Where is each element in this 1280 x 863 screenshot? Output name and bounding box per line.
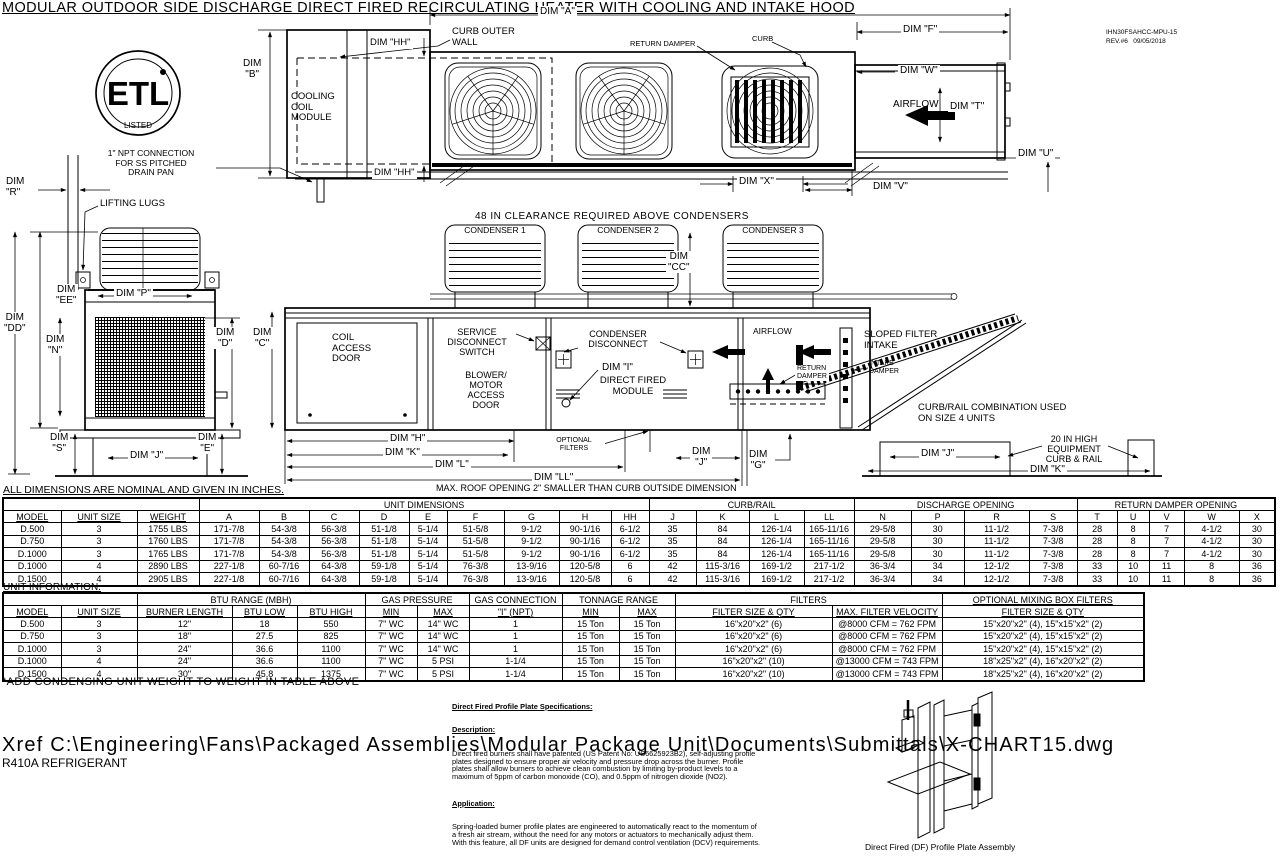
table-cell: 5-1/4 — [409, 535, 447, 548]
table-cell: 24" — [137, 643, 232, 656]
spec-application-body: Spring-loaded burner profile plates are … — [452, 823, 872, 847]
group-header-gas-connection: GAS CONNECTION — [469, 593, 562, 606]
table-cell: 18"x25"x2" (4), 16"x20"x2" (2) — [942, 655, 1144, 668]
table-cell: 7" WC — [365, 643, 417, 656]
dim-r-label: DIM "R" — [6, 176, 24, 198]
table-cell: 36.6 — [232, 643, 297, 656]
table-cell: 30 — [911, 548, 964, 561]
column-header: BTU HIGH — [297, 606, 365, 618]
table-cell: 15"x20"x2" (4), 15"x15"x2" (2) — [942, 618, 1144, 631]
table-cell: 7-3/8 — [1029, 573, 1077, 586]
drawing-number: IHN30FSAHCC-MPU-15 — [1106, 29, 1177, 36]
table-cell: 14" WC — [417, 630, 469, 643]
direct-fired-module-label: DIRECT FIRED MODULE — [578, 376, 688, 397]
table-cell: 64-3/8 — [309, 560, 359, 573]
table-cell: 33 — [1077, 573, 1117, 586]
table-cell: 169-1/2 — [749, 560, 804, 573]
table-cell: 51-1/8 — [359, 548, 409, 561]
table-cell: 11-1/2 — [964, 548, 1029, 561]
intake-damper-label: INTAKE DAMPER — [869, 360, 899, 376]
table-cell: @8000 CFM = 762 FPM — [832, 643, 942, 656]
table-cell: 171-7/8 — [199, 523, 259, 536]
table-cell: 5-1/4 — [409, 560, 447, 573]
table-cell: 7-3/8 — [1029, 560, 1077, 573]
table-cell: 126-1/4 — [749, 548, 804, 561]
table-cell: 36 — [1239, 560, 1275, 573]
unit-information-table: BTU RANGE (MBH) GAS PRESSURE GAS CONNECT… — [2, 592, 1145, 682]
spec-description-heading: Description: — [452, 726, 872, 734]
table-cell: 120-5/8 — [559, 573, 611, 586]
group-header-discharge-opening: DISCHARGE OPENING — [854, 498, 1077, 511]
column-header: L — [749, 511, 804, 523]
table-cell: 29-5/8 — [854, 535, 911, 548]
dim-v-label: DIM "V" — [871, 181, 910, 192]
table-cell: 54-3/8 — [259, 523, 309, 536]
profile-plate-assembly-drawing — [878, 686, 1078, 844]
dim-g-label: DIM "G" — [749, 449, 767, 471]
table-cell: 11 — [1149, 560, 1184, 573]
column-header: G — [504, 511, 559, 523]
table-cell: 7" WC — [365, 668, 417, 681]
group-header-tonnage-range: TONNAGE RANGE — [562, 593, 675, 606]
airflow-side-label: AIRFLOW — [753, 327, 792, 337]
table-cell: 51-1/8 — [359, 535, 409, 548]
table-cell: 15 Ton — [619, 618, 675, 631]
column-header: MAX. FILTER VELOCITY — [832, 606, 942, 618]
table-cell: 3 — [61, 535, 137, 548]
table-cell: 7 — [1149, 535, 1184, 548]
column-header: FILTER SIZE & QTY — [942, 606, 1144, 618]
table-cell: @8000 CFM = 762 FPM — [832, 630, 942, 643]
table-cell: @13000 CFM = 743 FPM — [832, 655, 942, 668]
table-cell: 10 — [1117, 560, 1149, 573]
table-cell: 16"x20"x2" (10) — [675, 655, 832, 668]
table-cell: 3 — [61, 523, 137, 536]
column-header: A — [199, 511, 259, 523]
etl-mark: ETL LISTED — [96, 51, 180, 135]
dim-ll-label: DIM "LL" — [532, 472, 575, 483]
sloped-filter-intake-label: SLOPED FILTER INTAKE — [864, 330, 937, 351]
cooling-coil-module-label: COOLING COIL MODULE — [291, 92, 335, 124]
table-row: D.100042890 LBS227-1/860-7/1664-3/859-1/… — [3, 560, 1275, 573]
table-cell: 169-1/2 — [749, 573, 804, 586]
table-cell: 15 Ton — [562, 630, 619, 643]
table-cell: 28 — [1077, 548, 1117, 561]
table-cell: 217-1/2 — [804, 573, 854, 586]
table-cell: 126-1/4 — [749, 535, 804, 548]
table-cell: 56-3/8 — [309, 523, 359, 536]
group-header-btu-range: BTU RANGE (MBH) — [137, 593, 365, 606]
spec-application-heading: Application: — [452, 800, 872, 808]
table-cell: 550 — [297, 618, 365, 631]
table-cell: 7-3/8 — [1029, 535, 1077, 548]
table-cell: 84 — [696, 535, 749, 548]
table-cell: 15 Ton — [562, 618, 619, 631]
column-header: "I" (NPT) — [469, 606, 562, 618]
table-cell: 29-5/8 — [854, 523, 911, 536]
dim-cc-label: DIM "CC" — [666, 251, 692, 273]
table-cell: 15 Ton — [562, 643, 619, 656]
table-cell: 825 — [297, 630, 365, 643]
column-header: P — [911, 511, 964, 523]
dim-e-label: DIM "E" — [196, 432, 218, 454]
refrigerant-note: R410A REFRIGERANT — [2, 757, 127, 770]
table-cell: 5-1/4 — [409, 523, 447, 536]
table-row: D.1000424"36.611007" WC5 PSI1-1/415 Ton1… — [3, 655, 1144, 668]
dimensions-table: UNIT DIMENSIONS CURB/RAIL DISCHARGE OPEN… — [2, 497, 1276, 587]
table-cell: 227-1/8 — [199, 560, 259, 573]
table-cell: 1755 LBS — [137, 523, 199, 536]
group-header-return-damper-opening: RETURN DAMPER OPENING — [1077, 498, 1275, 511]
table-row: D.150042905 LBS227-1/860-7/1664-3/859-1/… — [3, 573, 1275, 586]
table-cell: D.750 — [3, 535, 61, 548]
condenser-2-label: CONDENSER 2 — [582, 226, 674, 236]
table-cell: 60-7/16 — [259, 560, 309, 573]
table-cell: 84 — [696, 548, 749, 561]
column-header: B — [259, 511, 309, 523]
column-header: C — [309, 511, 359, 523]
airflow-plan-label: AIRFLOW — [893, 99, 939, 110]
roof-opening-note: MAX. ROOF OPENING 2" SMALLER THAN CURB O… — [436, 483, 737, 493]
table-cell: 5-1/4 — [409, 548, 447, 561]
table-cell: 115-3/16 — [696, 560, 749, 573]
dim-a-label: DIM "A" — [538, 6, 577, 17]
table-cell: D.750 — [3, 630, 61, 643]
spec-title: Direct Fired Profile Plate Specification… — [452, 703, 872, 711]
table-row: D.1000324"36.611007" WC14" WC115 Ton15 T… — [3, 643, 1144, 656]
clearance-note: 48 IN CLEARANCE REQUIRED ABOVE CONDENSER… — [475, 211, 749, 222]
table-cell: 36 — [1239, 573, 1275, 586]
condenser-1-fins — [449, 243, 541, 288]
table-cell: 4-1/2 — [1184, 535, 1239, 548]
table-cell: 51-1/8 — [359, 523, 409, 536]
lifting-lugs-label: LIFTING LUGS — [100, 199, 165, 210]
dim-h-label: DIM "H" — [388, 433, 427, 444]
table-cell: 30 — [1239, 548, 1275, 561]
table-cell: 6-1/2 — [611, 548, 649, 561]
table-cell: 51-5/8 — [447, 548, 504, 561]
table-cell: 54-3/8 — [259, 535, 309, 548]
table-cell: 3 — [61, 618, 137, 631]
column-header: D — [359, 511, 409, 523]
condenser-2-fins — [582, 243, 674, 288]
table-cell: 4 — [61, 560, 137, 573]
table-cell: 15 Ton — [619, 630, 675, 643]
table-cell: 9-1/2 — [504, 523, 559, 536]
dim-c-label: DIM "C" — [251, 327, 273, 349]
table-cell: 5-1/4 — [409, 573, 447, 586]
table-cell: 54-3/8 — [259, 548, 309, 561]
dim-s-label: DIM "S" — [48, 432, 70, 454]
column-header: K — [696, 511, 749, 523]
table-cell: 12" — [137, 618, 232, 631]
table-cell: 8 — [1117, 523, 1149, 536]
dim-j-left-label: DIM "J" — [128, 450, 165, 461]
curb-rail-20in-label: 20 IN HIGH EQUIPMENT CURB & RAIL — [1030, 434, 1118, 464]
table-cell: 28 — [1077, 523, 1117, 536]
table-cell: 171-7/8 — [199, 548, 259, 561]
table-cell: 7-3/8 — [1029, 523, 1077, 536]
service-disconnect-label: SERVICE DISCONNECT SWITCH — [434, 327, 520, 357]
table-cell: 9-1/2 — [504, 548, 559, 561]
dim-hh-bottom-label: DIM "HH" — [372, 168, 417, 179]
table-cell: 14" WC — [417, 618, 469, 631]
table-cell: 90-1/16 — [559, 523, 611, 536]
column-header: F — [447, 511, 504, 523]
table-cell: 16"x20"x2" (6) — [675, 618, 832, 631]
table-cell: 1760 LBS — [137, 535, 199, 548]
table-cell: 42 — [649, 560, 696, 573]
table-cell: 13-9/16 — [504, 573, 559, 586]
table-cell: 36.6 — [232, 655, 297, 668]
table-cell: 24" — [137, 655, 232, 668]
page-title: MODULAR OUTDOOR SIDE DISCHARGE DIRECT FI… — [2, 0, 855, 16]
column-header: H — [559, 511, 611, 523]
column-header: W — [1184, 511, 1239, 523]
table-cell: 15 Ton — [619, 643, 675, 656]
table-cell: 171-7/8 — [199, 535, 259, 548]
table-cell: 35 — [649, 548, 696, 561]
dim-hh-top-label: DIM "HH" — [368, 38, 413, 49]
table-cell: 18" — [137, 630, 232, 643]
table-cell: 1 — [469, 630, 562, 643]
curb-outer-wall-label: CURB OUTER WALL — [452, 27, 515, 48]
table-cell: D.1000 — [3, 548, 61, 561]
condenser-fins — [102, 233, 198, 285]
specifications-block: Direct Fired Profile Plate Specification… — [452, 687, 872, 863]
table-cell: 35 — [649, 535, 696, 548]
dim-j-rail-label: DIM "J" — [919, 448, 956, 459]
dim-d-label: DIM "D" — [214, 327, 236, 349]
table-cell: 10 — [1117, 573, 1149, 586]
table-cell: 8 — [1117, 535, 1149, 548]
table-cell: 7" WC — [365, 630, 417, 643]
column-header: V — [1149, 511, 1184, 523]
column-header: MAX — [619, 606, 675, 618]
column-header: E — [409, 511, 447, 523]
table-cell: 90-1/16 — [559, 535, 611, 548]
table-header-row: MODEL UNIT SIZE WEIGHT A B C D E F G H H… — [3, 511, 1275, 523]
table-cell: 7-3/8 — [1029, 548, 1077, 561]
table-cell: 29-5/8 — [854, 548, 911, 561]
table-cell: 165-11/16 — [804, 535, 854, 548]
table-cell: 1100 — [297, 643, 365, 656]
column-header: S — [1029, 511, 1077, 523]
table-cell: 33 — [1077, 560, 1117, 573]
return-damper-plan-label: RETURN DAMPER — [630, 40, 695, 48]
table-cell: 15 Ton — [562, 668, 619, 681]
dim-t-label: DIM "T" — [948, 101, 986, 112]
table-cell: 3 — [61, 643, 137, 656]
drawing-revision: REV.#6 09/05/2018 — [1106, 38, 1166, 45]
table-cell: 217-1/2 — [804, 560, 854, 573]
table-cell: 11 — [1149, 573, 1184, 586]
table-cell: 8 — [1184, 560, 1239, 573]
dim-ee-label: DIM "EE" — [54, 284, 78, 306]
group-header-filters: FILTERS — [675, 593, 942, 606]
column-header: WEIGHT — [137, 511, 199, 523]
dim-f-label: DIM "F" — [901, 24, 939, 35]
table-cell: 5 PSI — [417, 668, 469, 681]
table-cell: 6 — [611, 560, 649, 573]
table-cell: 6-1/2 — [611, 523, 649, 536]
table-cell: 8 — [1184, 573, 1239, 586]
table-cell: 13-9/16 — [504, 560, 559, 573]
assembly-caption: Direct Fired (DF) Profile Plate Assembly — [865, 843, 1015, 853]
optional-filters-label: OPTIONAL FILTERS — [543, 437, 605, 453]
etl-text: ETL — [107, 75, 169, 112]
dim-i-label: DIM "I" — [600, 362, 635, 373]
dim-w-label: DIM "W" — [898, 65, 940, 76]
group-header-gas-pressure: GAS PRESSURE — [365, 593, 469, 606]
dim-b-label: DIM "B" — [243, 58, 261, 80]
curb-label: CURB — [752, 35, 773, 43]
table-cell: 15 Ton — [619, 668, 675, 681]
table-cell: 18 — [232, 618, 297, 631]
dim-dd-label: DIM "DD" — [2, 312, 28, 334]
column-header: FILTER SIZE & QTY — [675, 606, 832, 618]
table-cell: 2905 LBS — [137, 573, 199, 586]
table-header-row: MODEL UNIT SIZE BURNER LENGTH BTU LOW BT… — [3, 606, 1144, 618]
coil-access-door-label: COIL ACCESS DOOR — [332, 333, 371, 365]
table-cell: 36-3/4 — [854, 560, 911, 573]
dim-n-label: DIM "N" — [44, 334, 66, 356]
table-cell: D.1000 — [3, 643, 61, 656]
dim-l-label: DIM "L" — [433, 459, 471, 470]
table-cell: 165-11/16 — [804, 548, 854, 561]
column-header: MODEL — [3, 511, 61, 523]
table-cell: D.1000 — [3, 560, 61, 573]
table-cell: 59-1/8 — [359, 573, 409, 586]
table-cell: 5 PSI — [417, 655, 469, 668]
condenser-1-label: CONDENSER 1 — [449, 226, 541, 236]
table-cell: 11-1/2 — [964, 523, 1029, 536]
group-header-unit-dimensions: UNIT DIMENSIONS — [199, 498, 649, 511]
table-cell: 42 — [649, 573, 696, 586]
table-cell: 34 — [911, 573, 964, 586]
table-cell: 30 — [1239, 535, 1275, 548]
table-cell: 1 — [469, 643, 562, 656]
table-row: D.50031755 LBS171-7/854-3/856-3/851-1/85… — [3, 523, 1275, 536]
table-row: D.750318"27.58257" WC14" WC115 Ton15 Ton… — [3, 630, 1144, 643]
dimensions-note: ALL DIMENSIONS ARE NOMINAL AND GIVEN IN … — [3, 485, 284, 497]
table-cell: 1765 LBS — [137, 548, 199, 561]
column-header: MIN — [365, 606, 417, 618]
column-header: MAX — [417, 606, 469, 618]
table-cell: @13000 CFM = 743 FPM — [832, 668, 942, 681]
condenser-disconnect-label: CONDENSER DISCONNECT — [574, 329, 662, 349]
etl-listed-text: LISTED — [124, 121, 152, 130]
table-cell: 16"x20"x2" (10) — [675, 668, 832, 681]
table-cell: 76-3/8 — [447, 560, 504, 573]
table-cell: 15 Ton — [562, 655, 619, 668]
table-cell: 6 — [611, 573, 649, 586]
table-cell: 60-7/16 — [259, 573, 309, 586]
column-header: N — [854, 511, 911, 523]
blower-motor-access-label: BLOWER/ MOTOR ACCESS DOOR — [450, 370, 522, 410]
table-cell: 7 — [1149, 523, 1184, 536]
table-cell: 34 — [911, 560, 964, 573]
table-cell: 3 — [61, 630, 137, 643]
weight-note: *ADD CONDENSING UNIT WEIGHT TO WEIGHT IN… — [2, 676, 359, 688]
curb-rail-note: CURB/RAIL COMBINATION USED ON SIZE 4 UNI… — [918, 403, 1066, 424]
column-header: UNIT SIZE — [61, 511, 137, 523]
table-cell: D.1000 — [3, 655, 61, 668]
table-cell: 28 — [1077, 535, 1117, 548]
table-cell: 126-1/4 — [749, 523, 804, 536]
table-cell: 4-1/2 — [1184, 548, 1239, 561]
table-cell: 64-3/8 — [309, 573, 359, 586]
xref-path-text: Xref C:\Engineering\Fans\Packaged Assemb… — [2, 734, 1114, 757]
table-cell: 12-1/2 — [964, 560, 1029, 573]
table-cell: 56-3/8 — [309, 548, 359, 561]
table-cell: 30 — [911, 535, 964, 548]
dim-k-rail-label: DIM "K" — [1028, 464, 1067, 475]
table-cell: 15 Ton — [619, 655, 675, 668]
column-header: MODEL — [3, 606, 61, 618]
table-cell: 7 — [1149, 548, 1184, 561]
table-cell: 8 — [1117, 548, 1149, 561]
table-cell: 16"x20"x2" (6) — [675, 643, 832, 656]
table-cell: 4-1/2 — [1184, 523, 1239, 536]
table-cell: 7" WC — [365, 655, 417, 668]
table-cell: 51-5/8 — [447, 535, 504, 548]
table-cell: 51-5/8 — [447, 523, 504, 536]
table-cell: 1-1/4 — [469, 668, 562, 681]
table-cell: D.500 — [3, 618, 61, 631]
group-header-curb-rail: CURB/RAIL — [649, 498, 854, 511]
table-cell: 14" WC — [417, 643, 469, 656]
group-header-optional-mixing: OPTIONAL MIXING BOX FILTERS — [942, 593, 1144, 606]
column-header: R — [964, 511, 1029, 523]
condenser-3-label: CONDENSER 3 — [727, 226, 819, 236]
dim-u-label: DIM "U" — [1016, 148, 1055, 159]
table-cell: 27.5 — [232, 630, 297, 643]
table-cell: 56-3/8 — [309, 535, 359, 548]
table-cell: 1100 — [297, 655, 365, 668]
column-header: BURNER LENGTH — [137, 606, 232, 618]
table-cell: 90-1/16 — [559, 548, 611, 561]
table-cell: 115-3/16 — [696, 573, 749, 586]
table-cell: 15"x20"x2" (4), 15"x15"x2" (2) — [942, 630, 1144, 643]
table-cell: 1-1/4 — [469, 655, 562, 668]
table-cell: 9-1/2 — [504, 535, 559, 548]
table-cell: 30 — [1239, 523, 1275, 536]
dim-x-label: DIM "X" — [737, 176, 776, 187]
table-cell: 35 — [649, 523, 696, 536]
table-cell: 30 — [911, 523, 964, 536]
npt-connection-note: 1" NPT CONNECTION FOR SS PITCHED DRAIN P… — [86, 149, 216, 178]
table-cell: 2890 LBS — [137, 560, 199, 573]
table-cell: 36-3/4 — [854, 573, 911, 586]
dim-p-label: DIM "P" — [114, 288, 153, 299]
table-row: D.75031760 LBS171-7/854-3/856-3/851-1/85… — [3, 535, 1275, 548]
table-cell: 165-11/16 — [804, 523, 854, 536]
table-cell: 120-5/8 — [559, 560, 611, 573]
table-cell: 59-1/8 — [359, 560, 409, 573]
condenser-3-fins — [727, 243, 819, 288]
empty-header — [3, 593, 137, 606]
column-header: BTU LOW — [232, 606, 297, 618]
return-damper-side-label: RETURN DAMPER — [795, 365, 829, 381]
empty-header — [3, 498, 199, 511]
column-header: LL — [804, 511, 854, 523]
table-cell: 7" WC — [365, 618, 417, 631]
column-header: X — [1239, 511, 1275, 523]
dim-k-label: DIM "K" — [383, 447, 422, 458]
dim-j-mid-label: DIM "J" — [690, 446, 712, 468]
table-cell: 18"x25"x2" (4), 16"x20"x2" (2) — [942, 668, 1144, 681]
